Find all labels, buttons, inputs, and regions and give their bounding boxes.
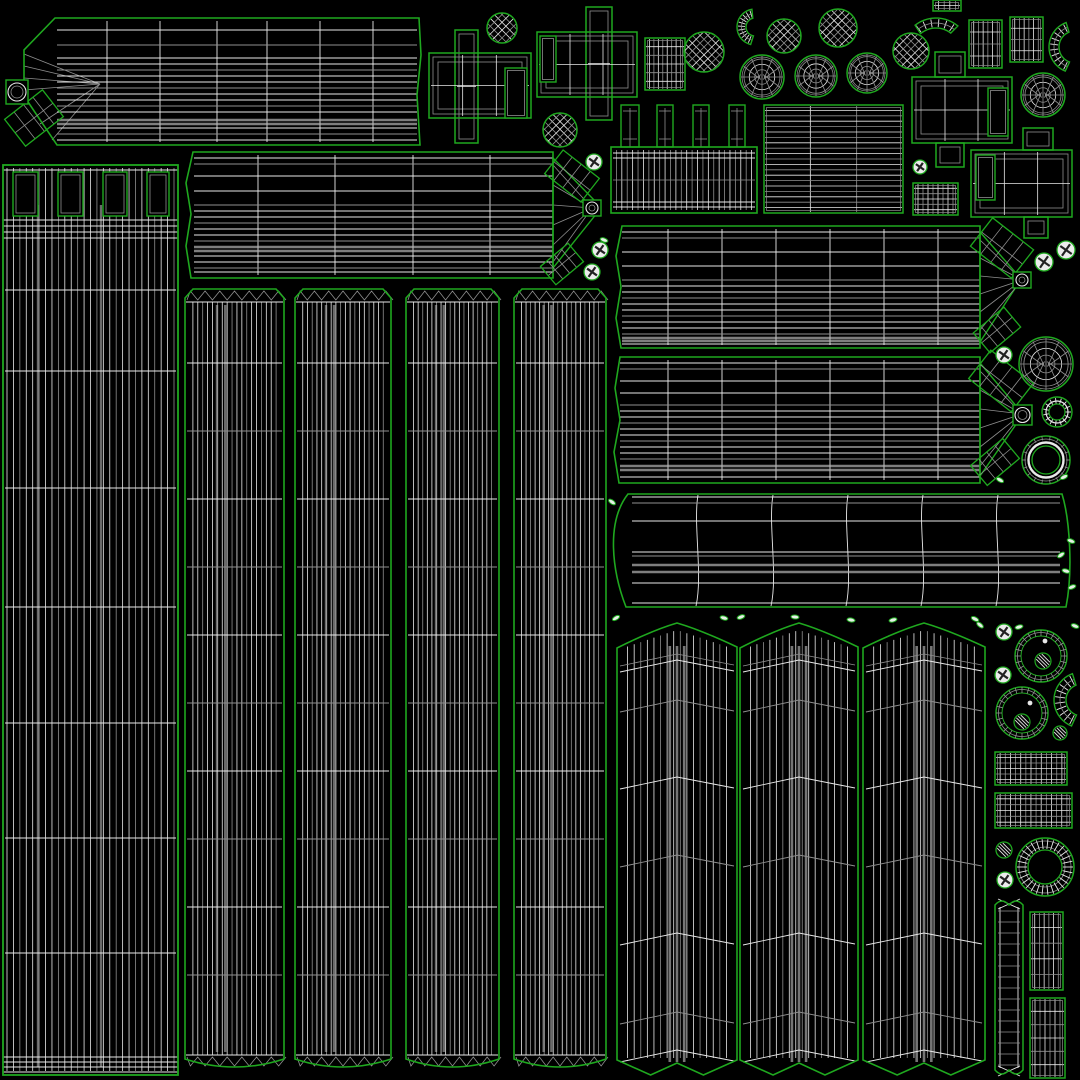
- chip-island: [847, 617, 856, 622]
- uv-island-tower-left: [3, 165, 178, 1075]
- uv-island-circle-polar: [1019, 337, 1073, 391]
- uv-island-circle-lattice: [481, 7, 523, 48]
- uv-island-knob: [6, 80, 28, 104]
- chip-island: [1062, 568, 1071, 574]
- screw-island: [586, 154, 603, 171]
- screw-island: [997, 872, 1014, 889]
- uv-island-bar-right-1: [616, 226, 1022, 348]
- uv-island-arc-band: [737, 9, 753, 44]
- uv-island-grid-rect: [969, 20, 1002, 68]
- uv-island-arc-band: [915, 18, 958, 34]
- screw-island: [996, 347, 1013, 364]
- uv-island-knob: [583, 200, 601, 216]
- uv-island-curtain-2: [740, 623, 858, 1075]
- uv-island-circle-lattice: [536, 106, 584, 153]
- uv-island-knob: [1013, 405, 1032, 425]
- uv-island-grid-rect: [995, 793, 1072, 828]
- uv-island-curtain-3: [863, 623, 985, 1075]
- hatch-disc-island: [996, 842, 1012, 858]
- chip-island: [737, 614, 746, 620]
- uv-island-knob: [1013, 272, 1031, 288]
- chip-island: [1015, 624, 1024, 630]
- chip-island: [612, 614, 621, 621]
- uv-island-arc-band: [1049, 23, 1070, 72]
- uv-island-grid-rect: [1010, 17, 1043, 62]
- uv-island-ring-thin: [996, 687, 1048, 739]
- uv-island-arc-band: [1054, 674, 1077, 726]
- screw-island: [584, 264, 601, 281]
- uv-island-grid-rect: [913, 183, 958, 215]
- uv-island-circle-polar: [847, 53, 887, 93]
- hatch-disc-island: [1053, 726, 1067, 740]
- uv-island-cross-2: [537, 7, 637, 120]
- uv-island-wavy-band: [613, 494, 1069, 607]
- uv-island-circle-lattice: [760, 12, 808, 59]
- screw-island: [996, 624, 1013, 641]
- uv-island-bar-right-2: [614, 357, 1022, 483]
- uv-island-ladder: [995, 899, 1023, 1076]
- uv-island-cross-4: [971, 128, 1072, 238]
- uv-wireframe-canvas: [0, 0, 1080, 1080]
- uv-atlas-page: [0, 0, 1080, 1080]
- chip-island: [1071, 623, 1080, 629]
- uv-island-grid-rect: [1030, 998, 1065, 1078]
- uv-island-ring-thin: [1015, 630, 1067, 682]
- uv-island-gear-ring: [1016, 838, 1074, 896]
- uv-island-circle-lattice: [676, 24, 733, 80]
- uv-island-grid-rect: [933, 0, 961, 11]
- uv-island-gear-small: [1042, 397, 1072, 427]
- screw-island: [1056, 240, 1075, 259]
- uv-island-strip-1: [185, 289, 286, 1067]
- uv-island-circle-lattice: [886, 26, 937, 75]
- uv-island-strip-4: [514, 289, 608, 1067]
- uv-island-circle-polar: [740, 55, 784, 99]
- uv-island-grid-rect: [764, 105, 903, 213]
- chip-island: [976, 621, 985, 629]
- uv-island-circle-lattice: [811, 1, 865, 51]
- uv-island-bar-top-left: [24, 18, 421, 145]
- uv-island-circle-polar: [1021, 73, 1065, 117]
- uv-island-cross-1: [429, 30, 531, 143]
- chip-island: [608, 498, 617, 506]
- uv-island-rotated-quad: [971, 439, 1020, 486]
- uv-island-grid-rect: [995, 752, 1067, 785]
- uv-island-strip-2: [295, 289, 393, 1067]
- uv-island-grid-rect: [645, 38, 685, 90]
- chip-island: [996, 476, 1005, 483]
- chip-island: [791, 615, 799, 620]
- screw-island: [913, 160, 927, 174]
- uv-island-comb: [611, 105, 757, 213]
- uv-island-curtain-1: [617, 623, 737, 1075]
- screw-island: [592, 242, 609, 259]
- chip-island: [1067, 538, 1076, 544]
- uv-island-bar-mid-left: [186, 152, 597, 278]
- uv-island-strip-3: [406, 289, 501, 1067]
- uv-island-circle-polar: [795, 55, 837, 97]
- chip-island: [889, 617, 898, 623]
- chip-island: [720, 615, 729, 621]
- screw-island: [1034, 252, 1053, 271]
- screw-island: [995, 667, 1012, 684]
- uv-island-grid-rect: [1030, 912, 1063, 990]
